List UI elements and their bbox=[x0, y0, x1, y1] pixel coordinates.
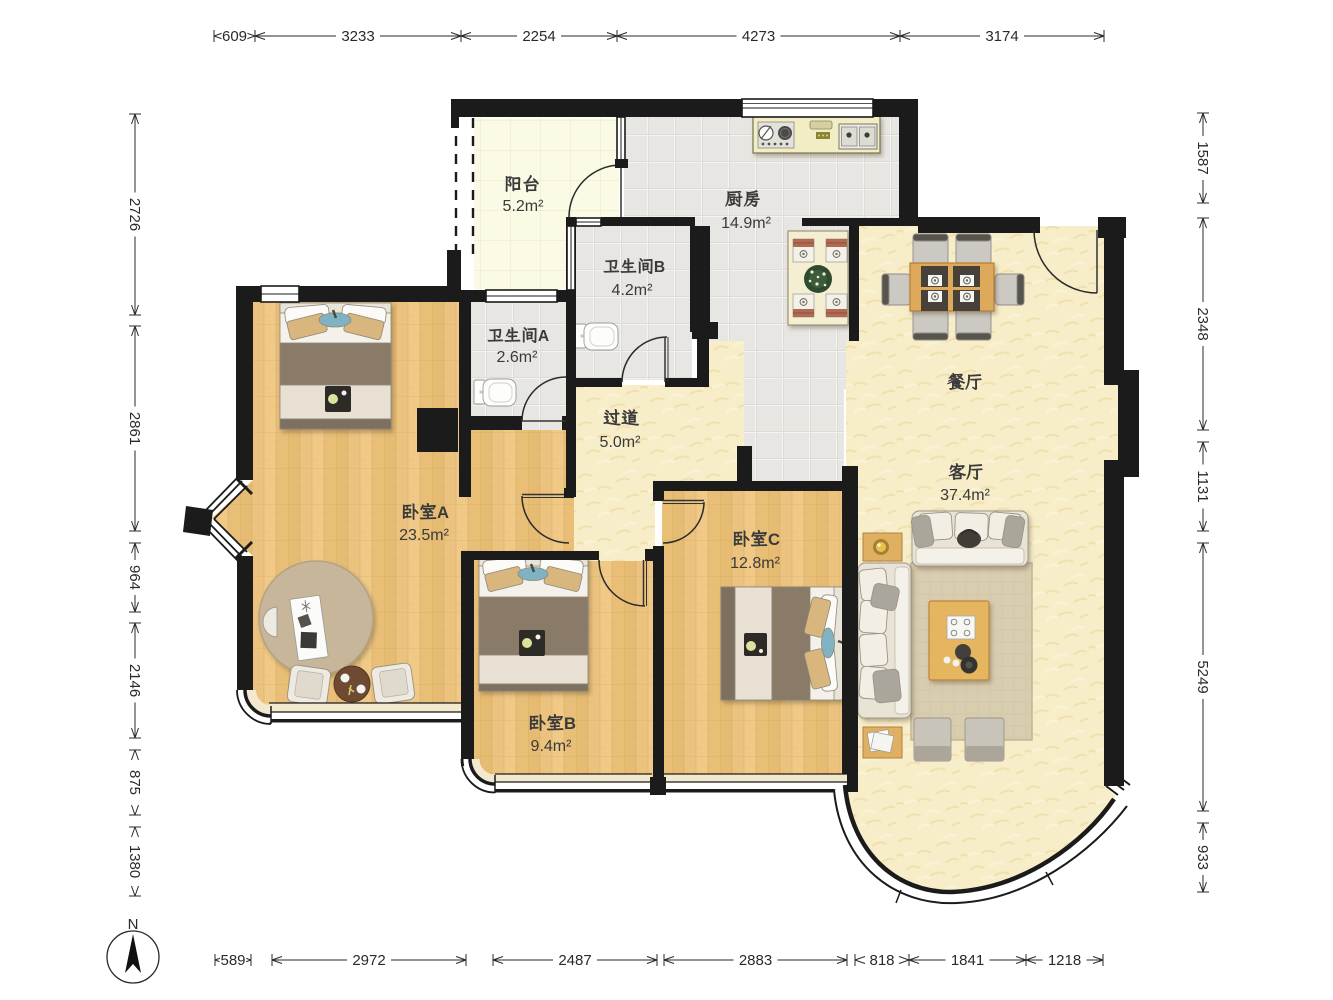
svg-text:2.6m²: 2.6m² bbox=[497, 349, 539, 366]
svg-text:964: 964 bbox=[126, 565, 143, 590]
svg-text:B: B bbox=[654, 259, 665, 276]
svg-text:875: 875 bbox=[126, 770, 143, 795]
svg-text:B: B bbox=[564, 714, 576, 733]
svg-text:3174: 3174 bbox=[985, 28, 1018, 45]
svg-text:2861: 2861 bbox=[126, 412, 143, 445]
svg-text:12.8m²: 12.8m² bbox=[730, 555, 780, 572]
svg-text:2883: 2883 bbox=[739, 952, 772, 969]
svg-text:609: 609 bbox=[222, 28, 247, 45]
svg-text:5.0m²: 5.0m² bbox=[600, 434, 642, 451]
svg-text:A: A bbox=[538, 328, 549, 345]
svg-text:1380: 1380 bbox=[126, 845, 143, 878]
svg-text:14.9m²: 14.9m² bbox=[721, 215, 771, 232]
svg-text:1218: 1218 bbox=[1048, 952, 1081, 969]
svg-text:1131: 1131 bbox=[1194, 470, 1211, 502]
svg-text:2487: 2487 bbox=[558, 952, 591, 969]
svg-text:2726: 2726 bbox=[126, 198, 143, 231]
svg-text:2348: 2348 bbox=[1194, 307, 1211, 340]
svg-text:37.4m²: 37.4m² bbox=[940, 487, 990, 504]
svg-text:2254: 2254 bbox=[522, 28, 555, 45]
svg-text:4273: 4273 bbox=[742, 28, 775, 45]
svg-text:23.5m²: 23.5m² bbox=[399, 527, 449, 544]
svg-text:2972: 2972 bbox=[352, 952, 385, 969]
svg-text:5249: 5249 bbox=[1194, 660, 1211, 693]
svg-text:818: 818 bbox=[869, 952, 894, 969]
svg-text:A: A bbox=[437, 503, 449, 522]
svg-text:933: 933 bbox=[1194, 845, 1211, 870]
svg-text:589: 589 bbox=[220, 952, 245, 969]
svg-text:9.4m²: 9.4m² bbox=[531, 738, 573, 755]
svg-text:3233: 3233 bbox=[341, 28, 374, 45]
svg-text:1841: 1841 bbox=[951, 952, 984, 969]
svg-text:2146: 2146 bbox=[126, 664, 143, 697]
svg-text:5.2m²: 5.2m² bbox=[503, 198, 545, 215]
svg-text:1587: 1587 bbox=[1194, 141, 1211, 174]
svg-text:C: C bbox=[768, 530, 780, 549]
svg-text:4.2m²: 4.2m² bbox=[612, 282, 654, 299]
svg-text:N: N bbox=[128, 916, 139, 933]
